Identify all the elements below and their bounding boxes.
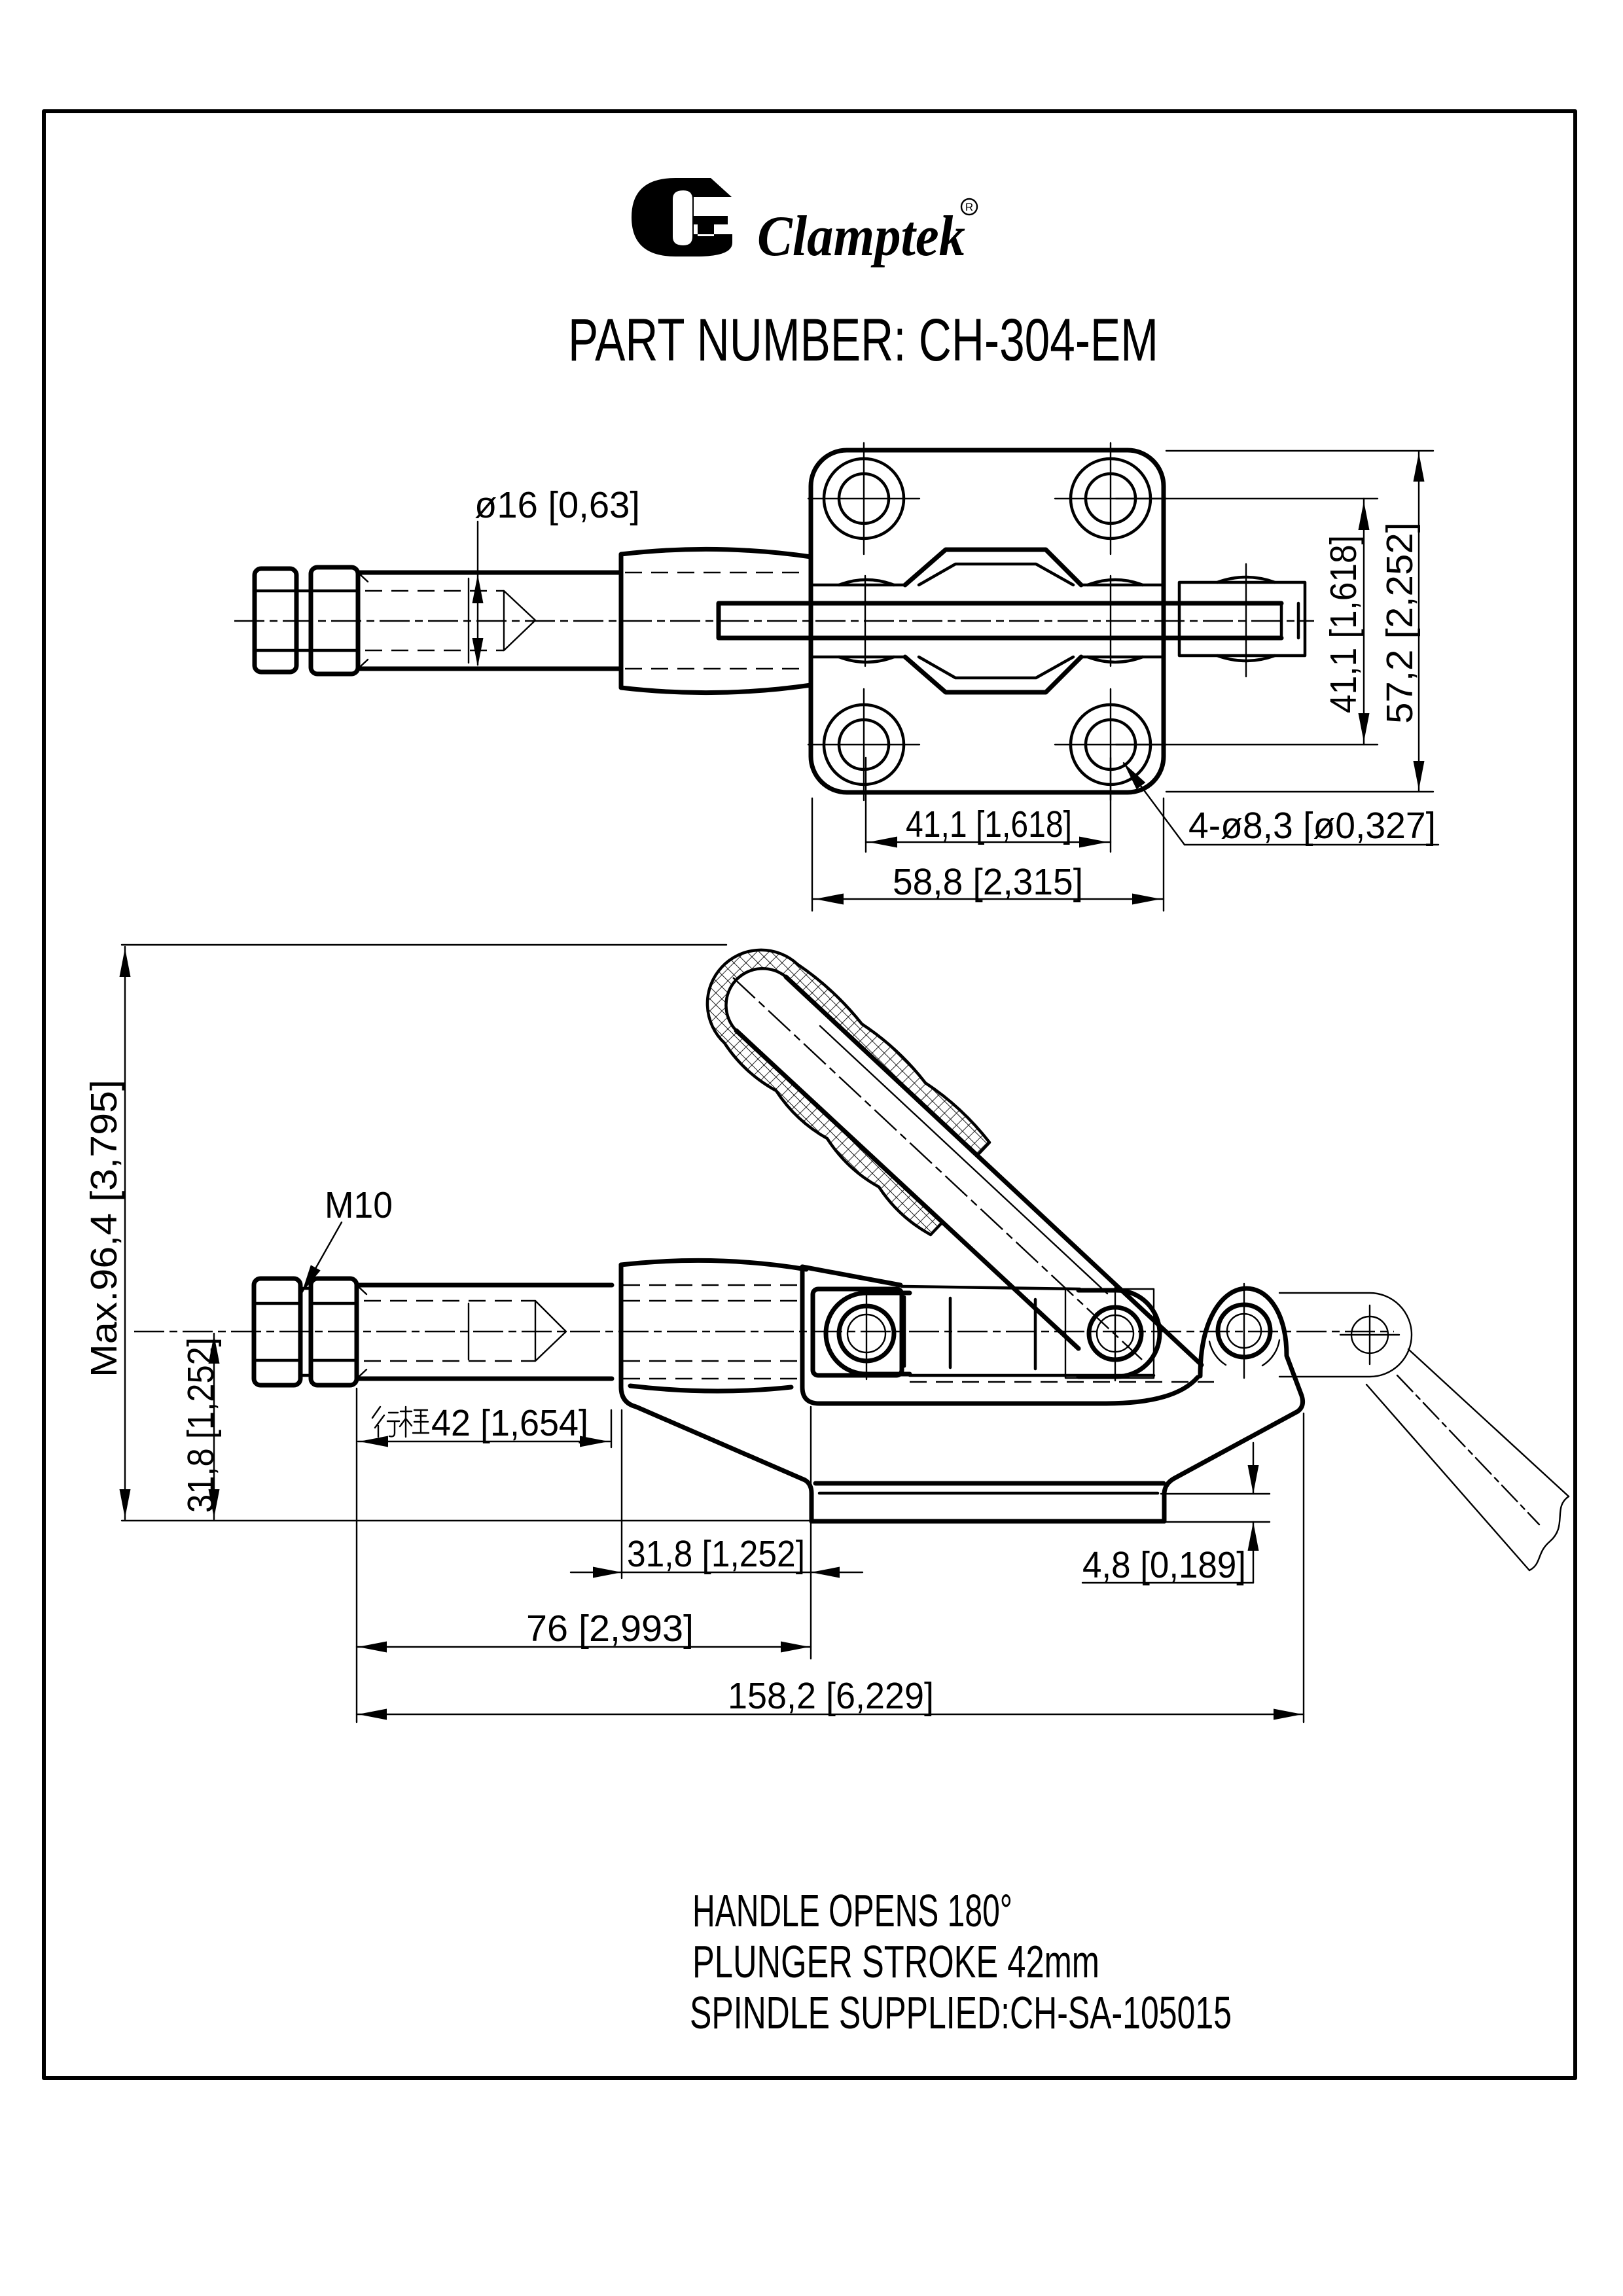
svg-text:42 [1,654]: 42 [1,654]	[431, 1402, 588, 1444]
svg-text:SPINDLE SUPPLIED:CH-SA-105015: SPINDLE SUPPLIED:CH-SA-105015	[690, 1987, 1232, 2038]
svg-text:M10: M10	[325, 1184, 393, 1226]
svg-text:PART NUMBER: CH-304-EM: PART NUMBER: CH-304-EM	[568, 307, 1158, 374]
svg-text:76 [2,993]: 76 [2,993]	[526, 1608, 694, 1650]
svg-text:4,8 [0,189]: 4,8 [0,189]	[1082, 1544, 1246, 1586]
svg-text:57,2 [2,252]: 57,2 [2,252]	[1379, 522, 1421, 724]
svg-text:Clamptek: Clamptek	[757, 205, 965, 268]
svg-text:41,1 [1,618]: 41,1 [1,618]	[1323, 535, 1364, 713]
svg-text:31,8 [1,252]: 31,8 [1,252]	[180, 1337, 222, 1513]
svg-text:ø16 [0,63]: ø16 [0,63]	[474, 484, 640, 526]
svg-text:4-ø8,3 [ø0,327]: 4-ø8,3 [ø0,327]	[1188, 805, 1436, 847]
svg-text:41,1 [1,618]: 41,1 [1,618]	[906, 804, 1072, 845]
svg-text:PLUNGER STROKE 42mm: PLUNGER STROKE 42mm	[692, 1936, 1099, 1987]
svg-text:Max.96,4 [3,795]: Max.96,4 [3,795]	[83, 1080, 125, 1377]
svg-text:31,8 [1,252]: 31,8 [1,252]	[627, 1533, 805, 1575]
svg-text:58,8 [2,315]: 58,8 [2,315]	[893, 861, 1083, 903]
svg-text:158,2 [6,229]: 158,2 [6,229]	[728, 1675, 934, 1717]
svg-text:HANDLE OPENS 180°: HANDLE OPENS 180°	[692, 1885, 1012, 1936]
svg-text:R: R	[965, 201, 973, 213]
